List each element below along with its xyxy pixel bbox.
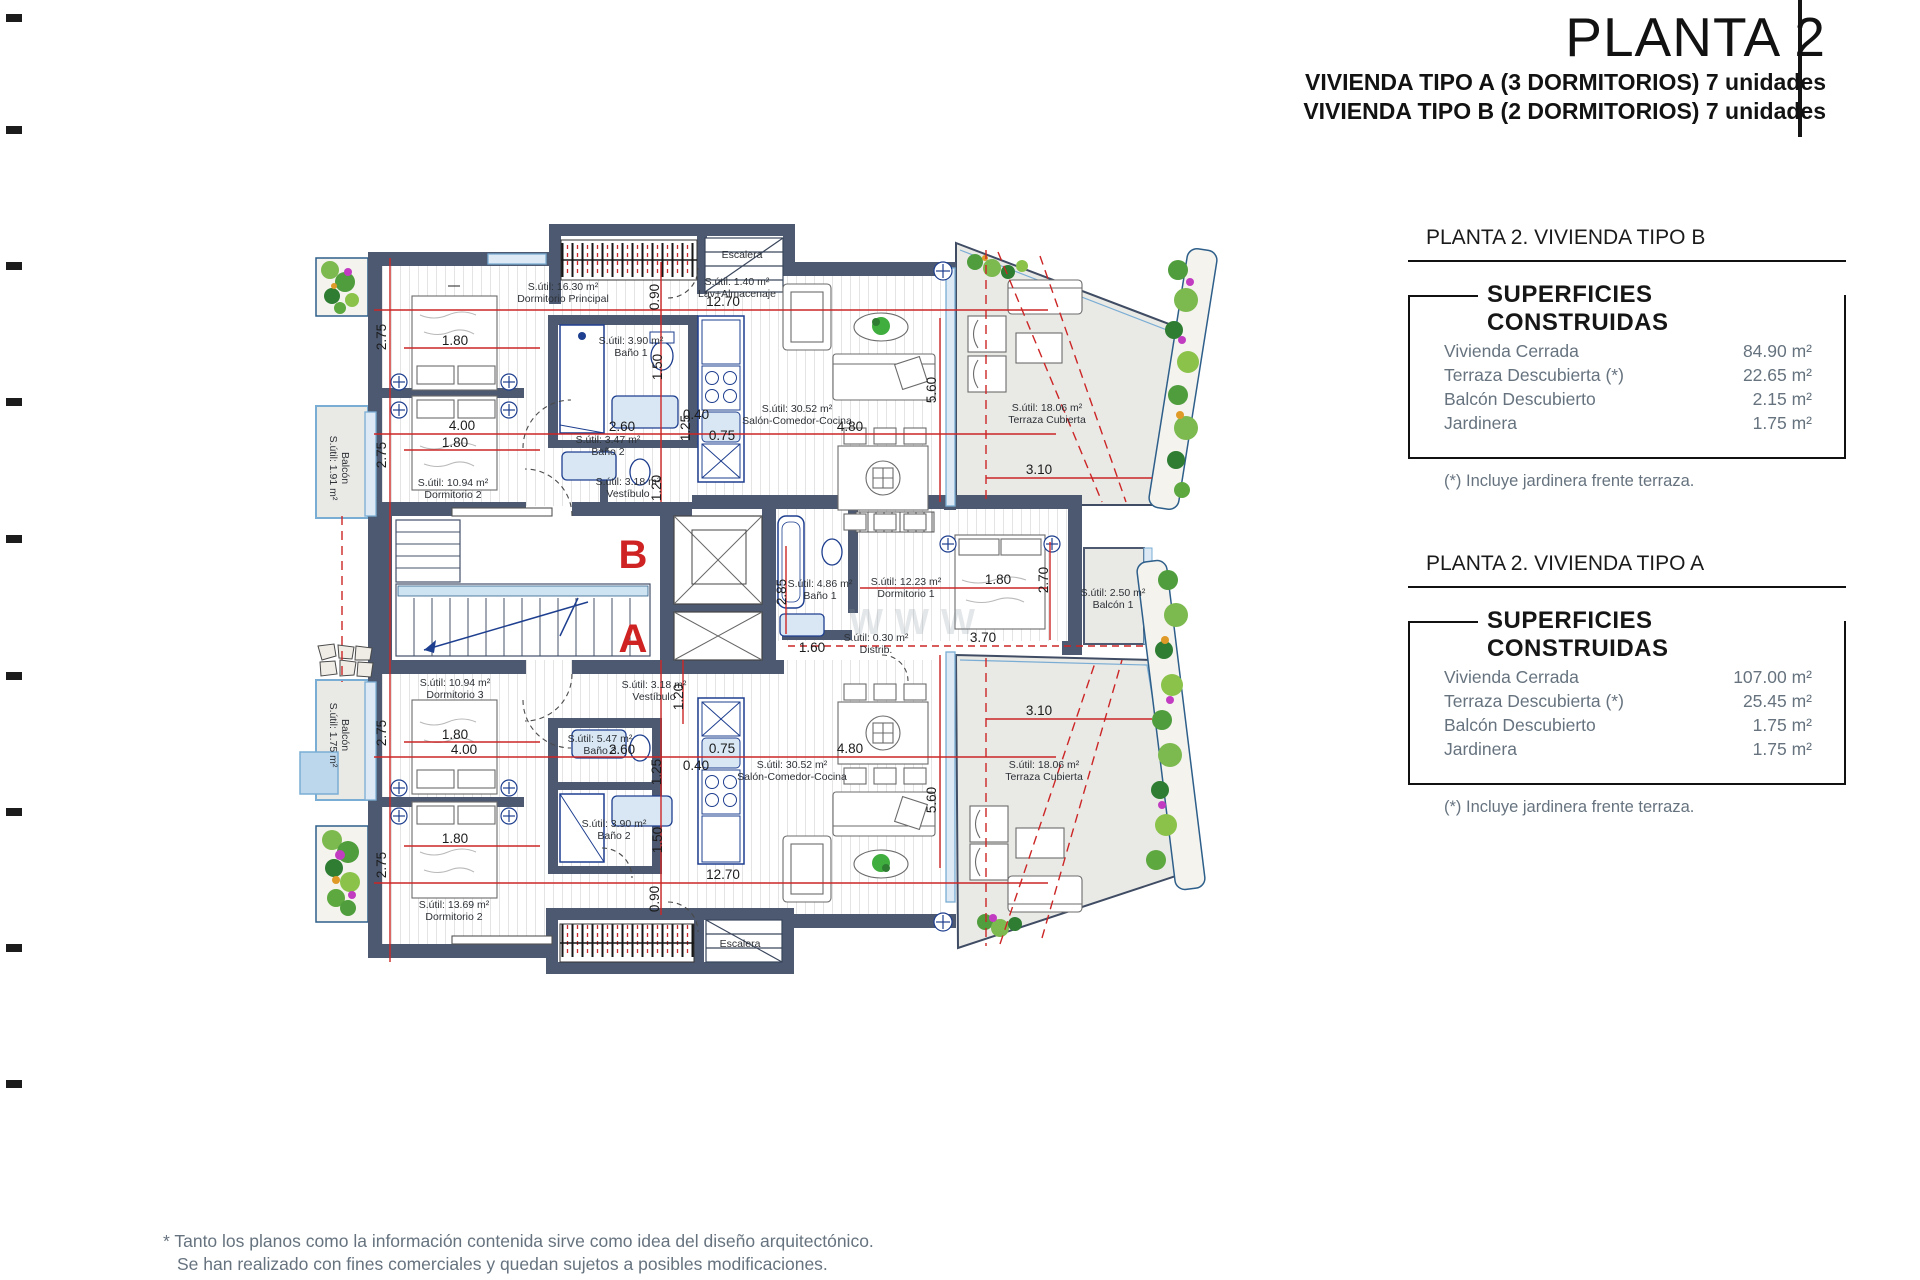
apartment-letter-b: B [619,533,648,577]
dimension-label: 4.00 [451,742,477,757]
dimension-label: 3.10 [1026,462,1052,477]
room-label: S.útil: 12.23 m²Dormitorio 1 [871,576,942,600]
dimension-label: 5.60 [924,787,939,813]
dimension-label: 4.80 [837,419,863,434]
dimension-label: 0.75 [709,428,735,443]
dimension-label: 1.20 [649,475,664,501]
row-label: Vivienda Cerrada [1444,665,1579,689]
dimension-label: 2.85 [774,579,789,605]
table-rule [1408,586,1846,588]
row-value: 1.75 m² [1753,411,1812,435]
dimension-label: 2.60 [609,742,635,757]
table-row: Jardinera1.75 m² [1444,737,1812,761]
surfaces-table-tipo-a: PLANTA 2. VIVIENDA TIPO A SUPERFICIES CO… [1408,551,1846,817]
table-header: PLANTA 2. VIVIENDA TIPO A [1426,551,1846,577]
dimension-label: 0.40 [683,407,709,422]
dimension-label: 2.70 [1036,567,1051,593]
row-value: 84.90 m² [1743,339,1812,363]
apartment-letter-a: A [619,617,648,661]
row-label: Jardinera [1444,411,1517,435]
room-label: S.útil: 18.06 m²Terraza Cubierta [1008,402,1086,426]
table-box-title: SUPERFICIES CONSTRUIDAS [1478,607,1844,663]
dimension-label: 0.75 [709,741,735,756]
table-header: PLANTA 2. VIVIENDA TIPO B [1426,225,1846,251]
disclaimer: * Tanto los planos como la información c… [163,1230,874,1276]
row-label: Vivienda Cerrada [1444,339,1579,363]
dimension-label: 2.75 [374,324,389,350]
table-box: SUPERFICIES CONSTRUIDAS Vivienda Cerrada… [1408,295,1846,459]
dimension-label: 2.75 [374,852,389,878]
subtitle-tipo-b: VIVIENDA TIPO B (2 DORMITORIOS) 7 unidad… [1303,97,1826,126]
table-rule [1408,260,1846,262]
row-value: 1.75 m² [1753,713,1812,737]
room-label: S.útil: 10.94 m²Dormitorio 3 [420,677,491,701]
table-box: SUPERFICIES CONSTRUIDAS Vivienda Cerrada… [1408,621,1846,785]
row-value: 22.65 m² [1743,363,1812,387]
row-value: 1.75 m² [1753,737,1812,761]
dimension-label: 1.80 [442,831,468,846]
row-label: Terraza Descubierta (*) [1444,363,1624,387]
table-box-title: SUPERFICIES CONSTRUIDAS [1478,281,1844,337]
dimension-label: 1.80 [442,727,468,742]
table-row: Vivienda Cerrada107.00 m² [1444,665,1812,689]
plan-sheet: { "page": { "title": "PLANTA 2", "subtit… [0,0,1920,1280]
stair-label: Escalera [720,938,761,950]
page-title: PLANTA 2 [1303,6,1826,68]
row-label: Balcón Descubierto [1444,387,1596,411]
dimension-label: 1.80 [442,435,468,450]
row-value: 25.45 m² [1743,689,1812,713]
dimension-label: 1.50 [650,354,665,380]
dimension-label: 0.90 [647,284,662,310]
room-label: S.útil: 16.30 m²Dormitorio Principal [517,281,609,305]
dimension-label: 1.80 [442,333,468,348]
room-label: S.útil: 13.69 m²Dormitorio 2 [419,899,490,923]
surfaces-table-tipo-b: PLANTA 2. VIVIENDA TIPO B SUPERFICIES CO… [1408,225,1846,491]
dimension-label: 2.60 [609,419,635,434]
dimension-label: 4.00 [449,418,475,433]
table-row: Vivienda Cerrada84.90 m² [1444,339,1812,363]
dimension-label: 2.75 [374,720,389,746]
table-row: Terraza Descubierta (*)22.65 m² [1444,363,1812,387]
stone-texture [318,644,373,677]
table-row: Balcón Descubierto1.75 m² [1444,713,1812,737]
table-note: (*) Incluye jardinera frente terraza. [1444,472,1846,491]
disclaimer-line-1: * Tanto los planos como la información c… [163,1230,874,1253]
table-note: (*) Incluye jardinera frente terraza. [1444,798,1846,817]
dimension-label: 2.75 [374,442,389,468]
room-label: S.útil: 18.06 m²Terraza Cubierta [1005,759,1083,783]
row-label: Jardinera [1444,737,1517,761]
table-row: Terraza Descubierta (*)25.45 m² [1444,689,1812,713]
title-block: PLANTA 2 VIVIENDA TIPO A (3 DORMITORIOS)… [1303,6,1826,126]
dimension-label: 0.90 [647,886,662,912]
dimension-label: 1.50 [650,827,665,853]
row-value: 2.15 m² [1753,387,1812,411]
stair-label: Escalera [722,249,763,261]
row-label: Terraza Descubierta (*) [1444,689,1624,713]
row-label: Balcón Descubierto [1444,713,1596,737]
dimension-label: 12.70 [706,867,740,882]
dimension-label: 1.20 [671,684,686,710]
table-row: Jardinera1.75 m² [1444,411,1812,435]
subtitle-tipo-a: VIVIENDA TIPO A (3 DORMITORIOS) 7 unidad… [1303,68,1826,97]
dimension-label: 5.60 [924,377,939,403]
disclaimer-line-2: Se han realizado con fines comerciales y… [163,1253,874,1276]
dimension-label: 1.25 [649,759,664,785]
dimension-label: 1.80 [985,572,1011,587]
row-value: 107.00 m² [1733,665,1812,689]
dimension-label: 3.10 [1026,703,1052,718]
dimension-label: 1.60 [799,640,825,655]
watermark: WWW [849,601,987,642]
dimension-label: 12.70 [706,294,740,309]
dimension-label: 4.80 [837,741,863,756]
room-label: S.útil: 10.94 m²Dormitorio 2 [418,477,489,501]
table-row: Balcón Descubierto2.15 m² [1444,387,1812,411]
dimension-label: 0.40 [683,758,709,773]
